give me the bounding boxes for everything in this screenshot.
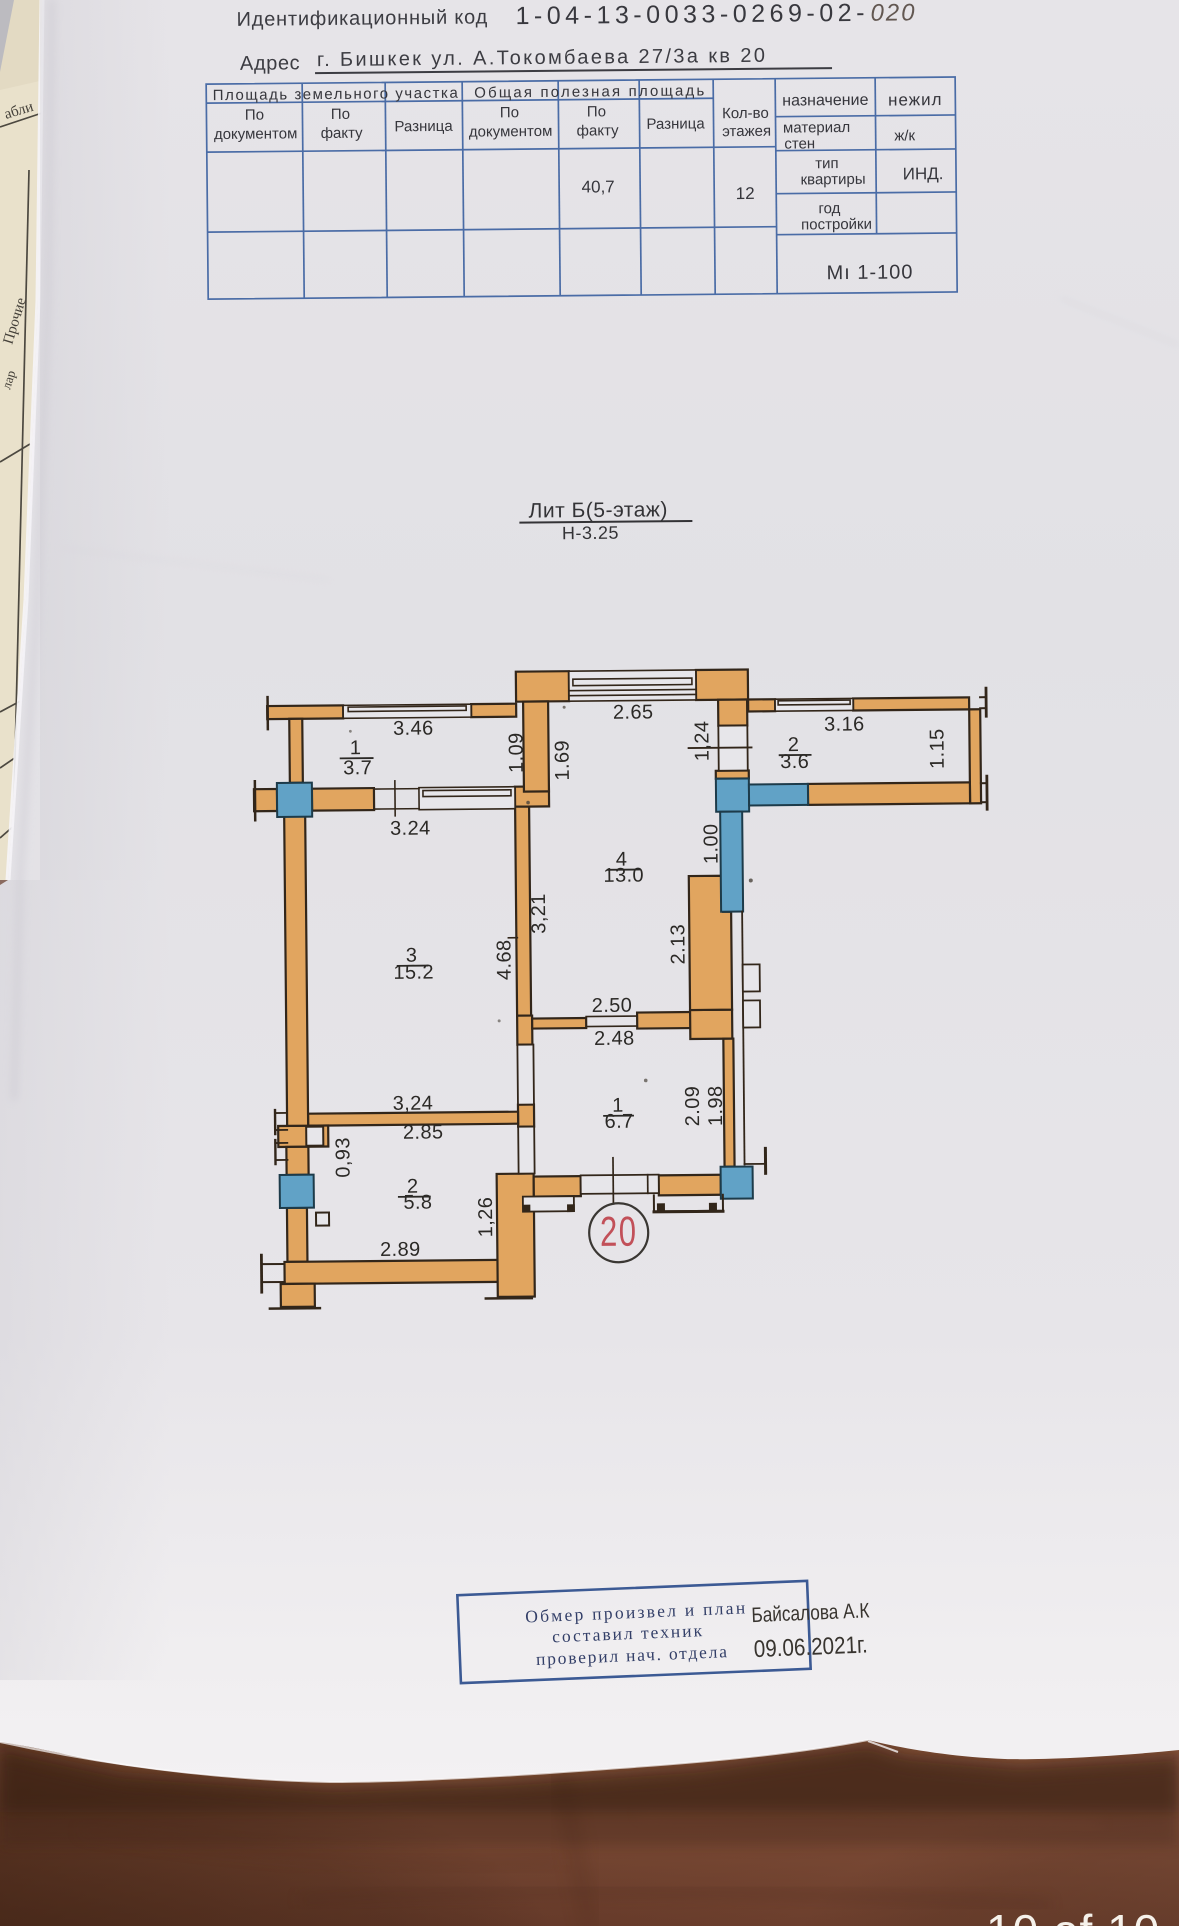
- svg-text:2.89: 2.89: [380, 1239, 421, 1261]
- svg-text:1,24: 1,24: [691, 721, 713, 762]
- svg-text:2.09: 2.09: [682, 1086, 704, 1127]
- svg-text:постройки: постройки: [801, 216, 872, 234]
- svg-text:1: 1: [350, 737, 362, 759]
- svg-text:2.48: 2.48: [594, 1028, 635, 1050]
- svg-text:факту: факту: [577, 122, 620, 139]
- svg-text:документом: документом: [214, 125, 298, 143]
- svg-text:По: По: [331, 106, 350, 123]
- svg-text:40,7: 40,7: [582, 177, 615, 196]
- svg-text:Площадь земельного участка: Площадь земельного участка: [213, 85, 459, 104]
- svg-text:6.7: 6.7: [605, 1111, 634, 1133]
- svg-text:1.98: 1.98: [705, 1085, 727, 1126]
- svg-text:Н-3.25: Н-3.25: [562, 523, 619, 544]
- svg-text:этажея: этажея: [722, 123, 771, 140]
- svg-text:3.16: 3.16: [824, 713, 865, 735]
- svg-text:По: По: [587, 103, 606, 120]
- svg-text:1,26: 1,26: [475, 1197, 497, 1238]
- svg-text:Лит Б(5-этаж): Лит Б(5-этаж): [529, 498, 668, 522]
- svg-text:020: 020: [870, 0, 916, 27]
- svg-text:нежил: нежил: [888, 90, 943, 110]
- svg-text:2.13: 2.13: [667, 924, 689, 965]
- svg-text:Байсалова А.К: Байсалова А.К: [751, 1600, 871, 1628]
- svg-text:По: По: [245, 107, 264, 124]
- svg-text:2.65: 2.65: [613, 701, 654, 723]
- svg-text:12: 12: [736, 184, 755, 203]
- svg-text:3.46: 3.46: [393, 717, 434, 739]
- svg-text:10 of 10: 10 of 10: [986, 1905, 1160, 1926]
- svg-text:1.09: 1.09: [505, 732, 527, 773]
- svg-text:По: По: [500, 104, 519, 121]
- svg-text:Адрес: Адрес: [240, 52, 300, 75]
- svg-text:09.06.2021г.: 09.06.2021г.: [753, 1631, 868, 1662]
- svg-text:факту: факту: [321, 125, 364, 142]
- svg-text:3,24: 3,24: [393, 1093, 434, 1115]
- svg-text:Разница: Разница: [646, 115, 705, 133]
- svg-text:2.50: 2.50: [592, 995, 633, 1017]
- svg-text:1.00: 1.00: [700, 823, 722, 864]
- svg-text:квартиры: квартиры: [800, 171, 865, 189]
- svg-text:5.8: 5.8: [403, 1192, 432, 1214]
- svg-text:тип: тип: [815, 155, 839, 172]
- svg-text:3.24: 3.24: [390, 818, 431, 840]
- svg-text:ж/к: ж/к: [894, 127, 915, 144]
- svg-text:ИНД.: ИНД.: [903, 164, 944, 183]
- svg-text:Идентификационный код: Идентификационный код: [236, 6, 488, 30]
- svg-text:документом: документом: [469, 123, 553, 141]
- svg-text:Разница: Разница: [394, 118, 453, 136]
- svg-text:2.85: 2.85: [403, 1121, 444, 1143]
- svg-text:13.0: 13.0: [603, 864, 644, 886]
- svg-text:материал: материал: [783, 119, 850, 137]
- svg-text:стен: стен: [784, 135, 815, 152]
- svg-text:3.7: 3.7: [343, 757, 372, 779]
- svg-text:1.69: 1.69: [551, 740, 573, 781]
- svg-text:назначение: назначение: [782, 92, 868, 110]
- svg-text:4.68: 4.68: [493, 939, 515, 980]
- svg-text:год: год: [818, 200, 840, 217]
- svg-text:20: 20: [600, 1208, 638, 1255]
- svg-text:Мı 1-100: Мı 1-100: [826, 261, 913, 284]
- svg-text:1-04-13-0033-0269-02-: 1-04-13-0033-0269-02-: [515, 0, 864, 30]
- svg-text:Кол-во: Кол-во: [722, 105, 769, 122]
- svg-text:3,21: 3,21: [528, 893, 550, 934]
- svg-text:0,93: 0,93: [332, 1137, 354, 1178]
- svg-text:г. Бишкек ул. А.Токомбаева: г. Бишкек ул. А.Токомбаева 27/3а кв 20: [317, 45, 765, 71]
- svg-text:1.15: 1.15: [926, 728, 948, 769]
